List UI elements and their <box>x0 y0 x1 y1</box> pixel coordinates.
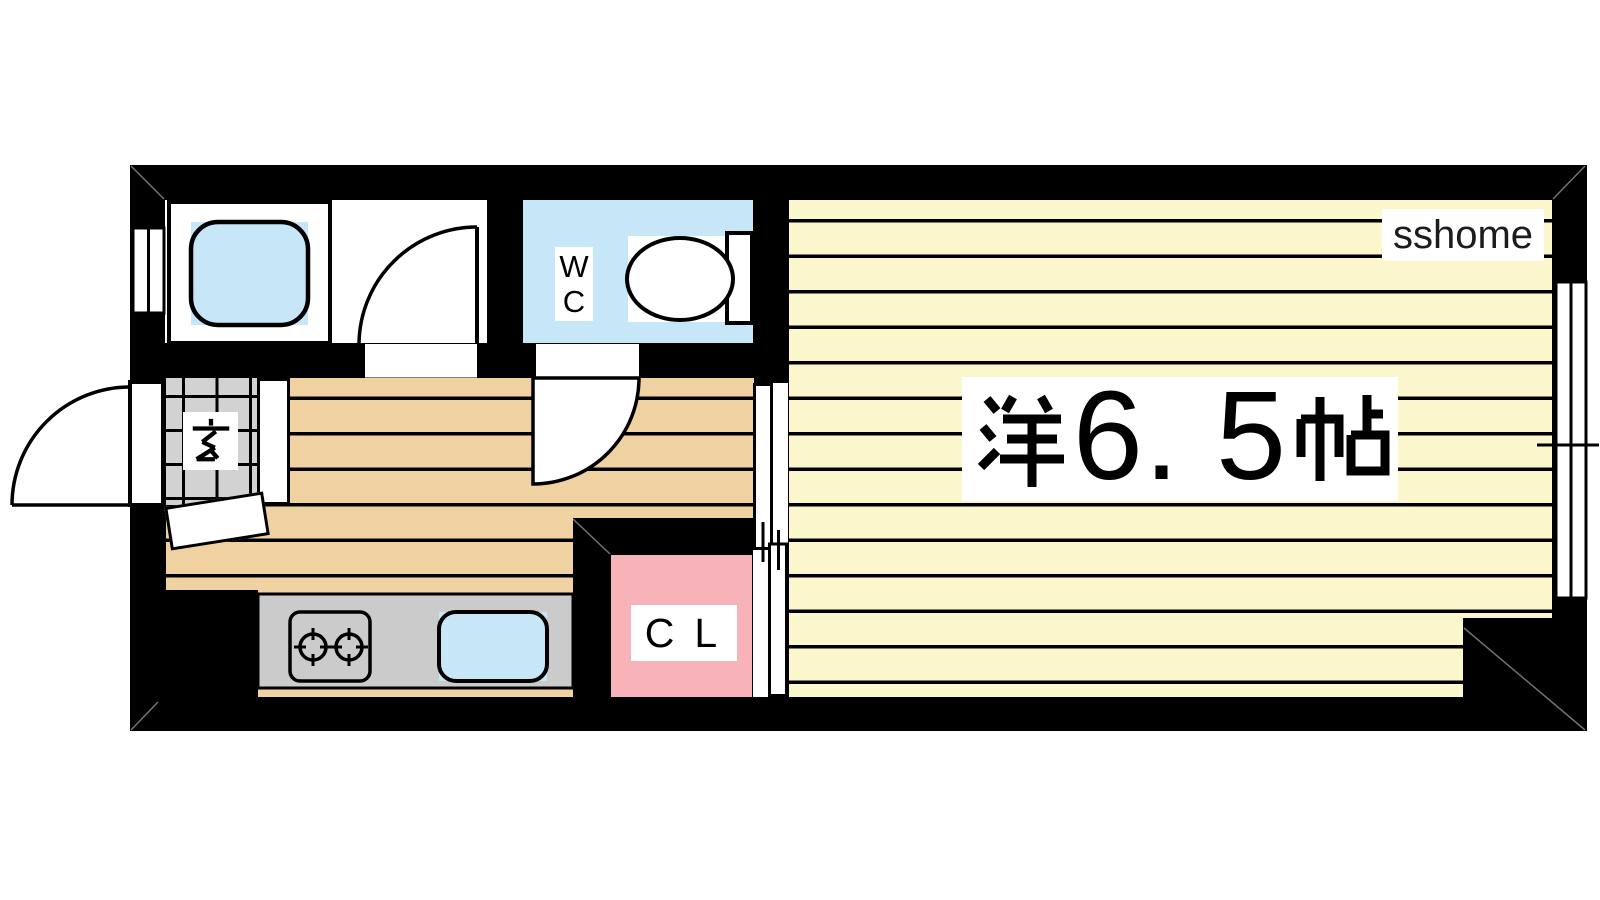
entrance-door <box>12 382 163 505</box>
entrance-door-leaf <box>130 382 163 505</box>
wc-label: W C <box>555 247 593 321</box>
wc-door <box>533 343 642 484</box>
main-room-label: 6. 5 <box>962 377 1398 501</box>
kanji-gen-icon <box>187 417 235 465</box>
genkan-label <box>183 412 238 470</box>
closet-label: CL <box>631 605 737 661</box>
window-left <box>133 228 164 313</box>
main-room-size: 6. 5 <box>1073 376 1287 496</box>
toilet <box>627 233 752 323</box>
entrance-door-arc <box>12 387 130 505</box>
wc-label-line1: W <box>559 249 588 284</box>
sink <box>439 612 547 681</box>
watermark: sshome <box>1382 209 1544 261</box>
toilet-bowl <box>627 238 733 320</box>
kitchen-counter <box>258 594 573 688</box>
kanji-jou-icon <box>1293 389 1393 489</box>
kanji-you-icon <box>967 389 1067 489</box>
wc-door-arc <box>533 378 639 484</box>
bathroom-door-arc <box>359 227 477 343</box>
floorplan-canvas: W C CL 6. 5 sshome <box>0 0 1600 900</box>
bathroom-unit <box>169 202 330 343</box>
bathroom-door <box>359 227 477 378</box>
bathtub <box>191 222 308 325</box>
wc-label-line2: C <box>563 284 585 319</box>
window-right <box>1537 282 1599 598</box>
sliding-door <box>753 383 788 697</box>
